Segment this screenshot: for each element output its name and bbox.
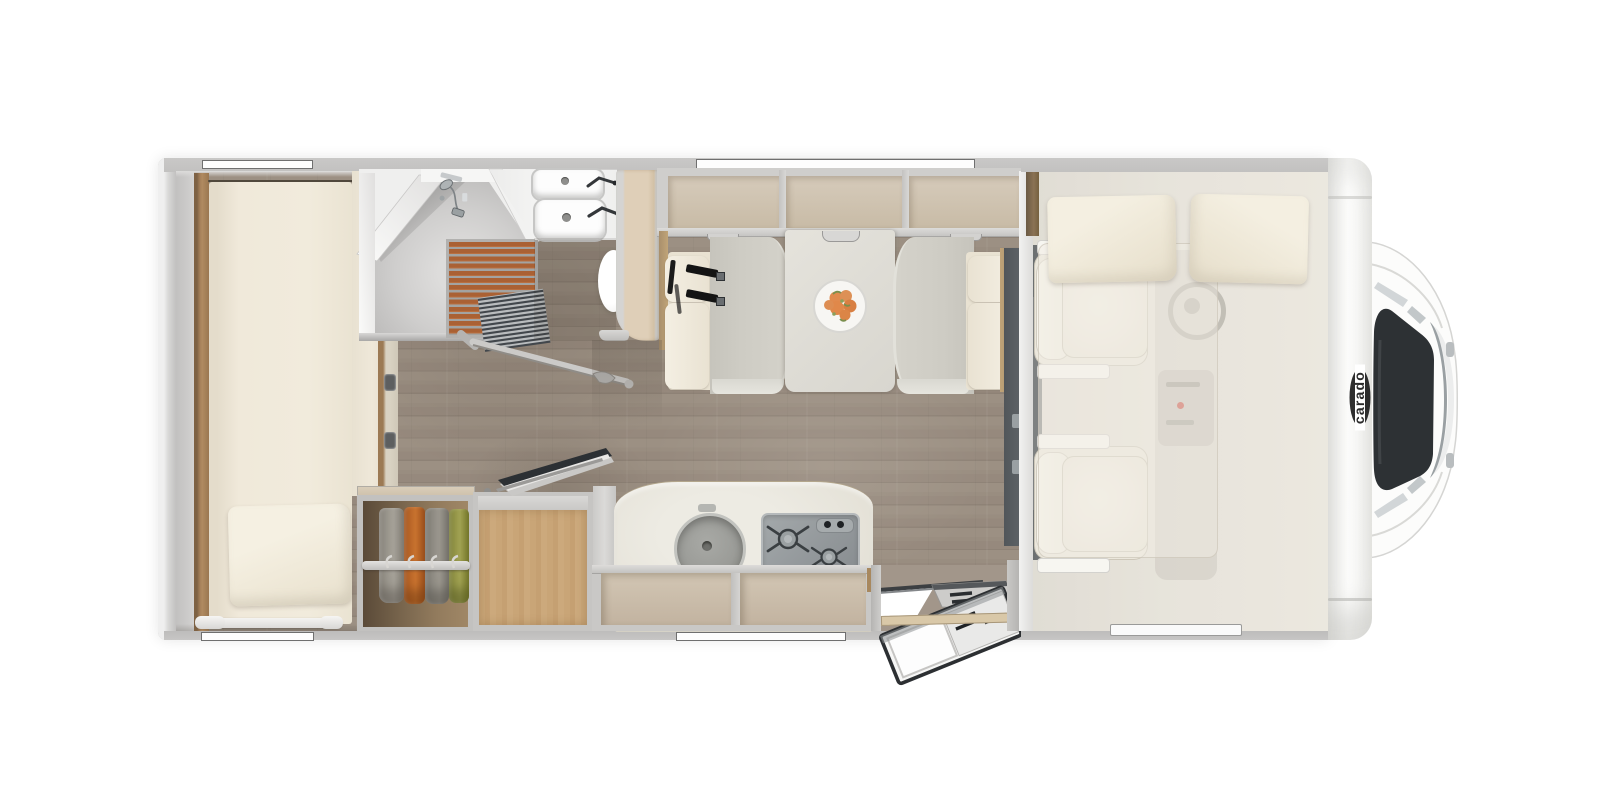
svg-text:carado: carado [1351, 371, 1367, 424]
